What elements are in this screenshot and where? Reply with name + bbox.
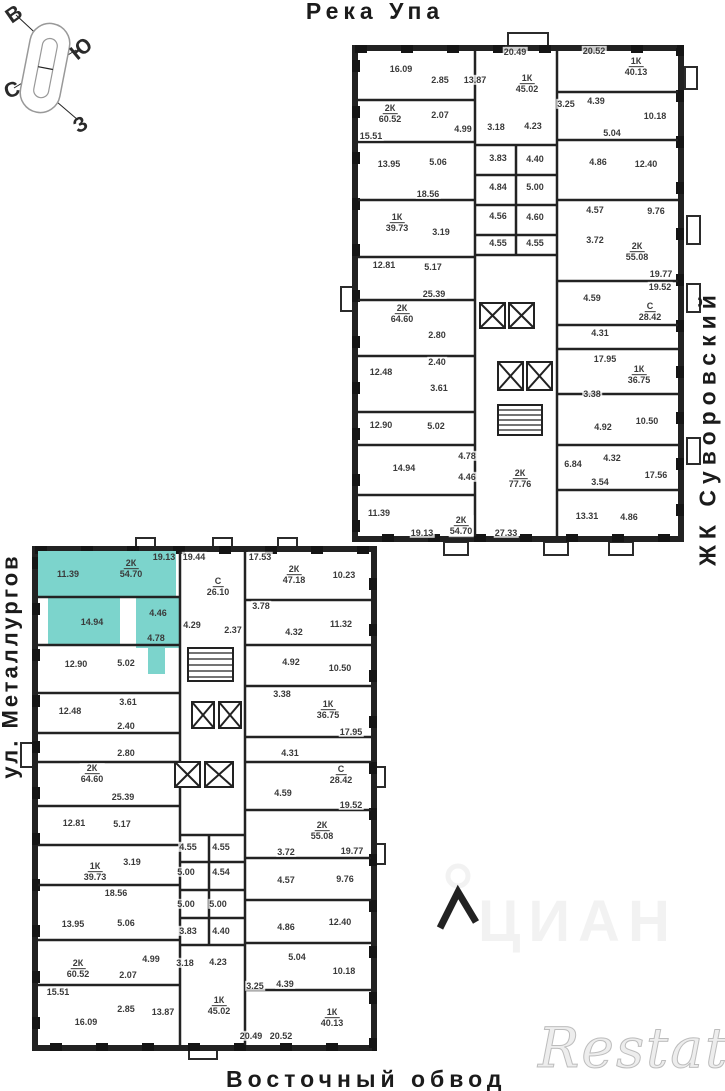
balcony: [686, 215, 701, 245]
compass-west: З: [69, 112, 92, 137]
top-building-floorplan: [352, 45, 684, 542]
bottom-building-floorplan: [32, 546, 377, 1051]
street-label-top: Река Упа: [270, 0, 480, 25]
balcony: [543, 541, 569, 556]
staircase-icon: [498, 405, 542, 435]
floorplan-page: Река Упа ЖК Суворовский ул. Металлургов …: [0, 0, 725, 1091]
street-label-bottom: Восточный обвод: [226, 1066, 494, 1091]
restate-watermark: Restate: [538, 1016, 725, 1080]
street-label-right: ЖК Суворовский: [695, 283, 722, 573]
cian-watermark: ЦИАН: [478, 888, 678, 955]
cian-watermark-person-icon: [432, 862, 484, 934]
balcony: [684, 66, 698, 90]
compass-east: В: [2, 2, 27, 28]
balcony: [443, 541, 469, 556]
street-label-left: ул. Металлургов: [0, 544, 24, 789]
balcony: [608, 541, 634, 556]
compass-icon: В Ю С З: [2, 2, 94, 137]
compass-south: Ю: [66, 33, 94, 65]
compass-north: С: [2, 77, 23, 104]
staircase-icon: [188, 648, 233, 681]
